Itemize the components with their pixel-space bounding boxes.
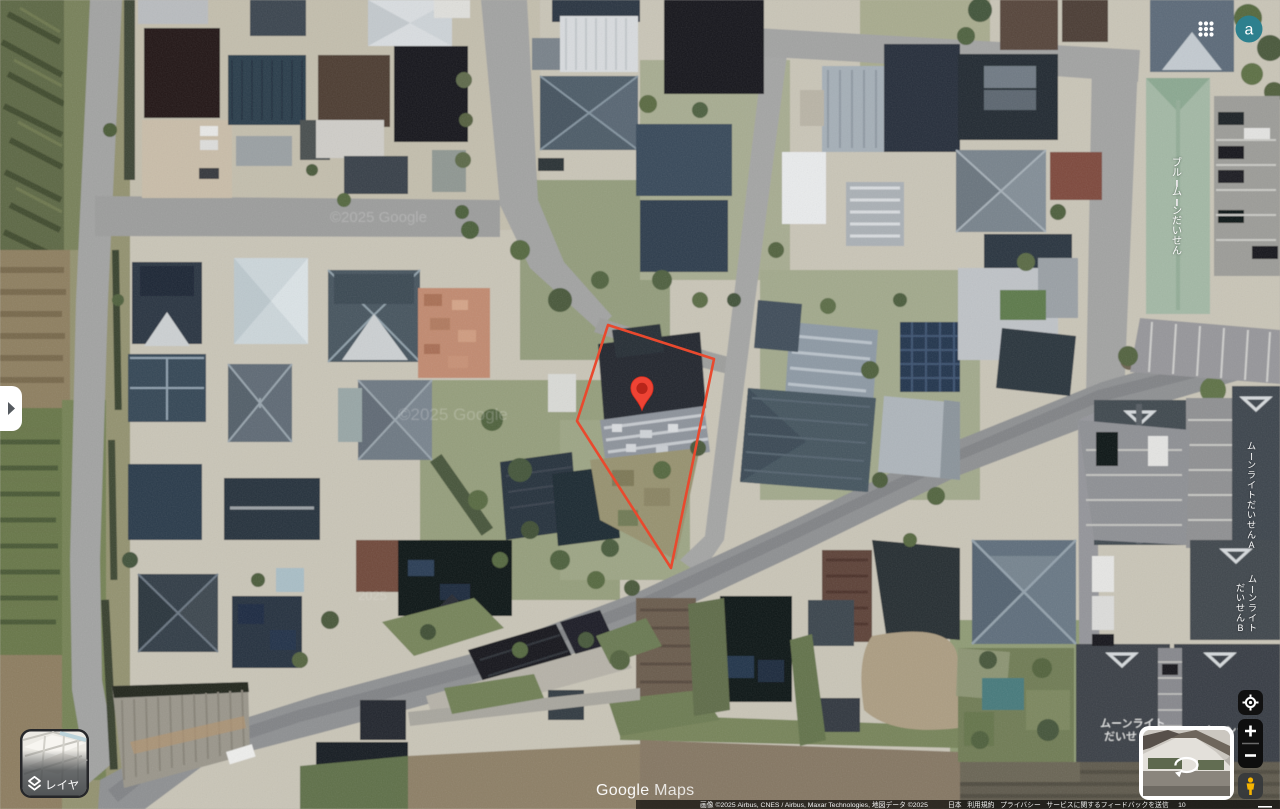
svg-text:日本 利用規約 プライバシー サービスに関するフ: 日本 利用規約 プライバシー サービスに関するフィードバックを送信 10 xyxy=(948,800,1186,809)
svg-text:a: a xyxy=(1245,22,1254,39)
svg-text:画像 ©2025 Airbus, CNES / Airbus: 画像 ©2025 Airbus, CNES / Airbus, Maxar Te… xyxy=(700,800,928,809)
svg-text:Google Maps: Google Maps xyxy=(596,782,694,799)
svg-text:レイヤ: レイヤ xyxy=(45,780,79,792)
